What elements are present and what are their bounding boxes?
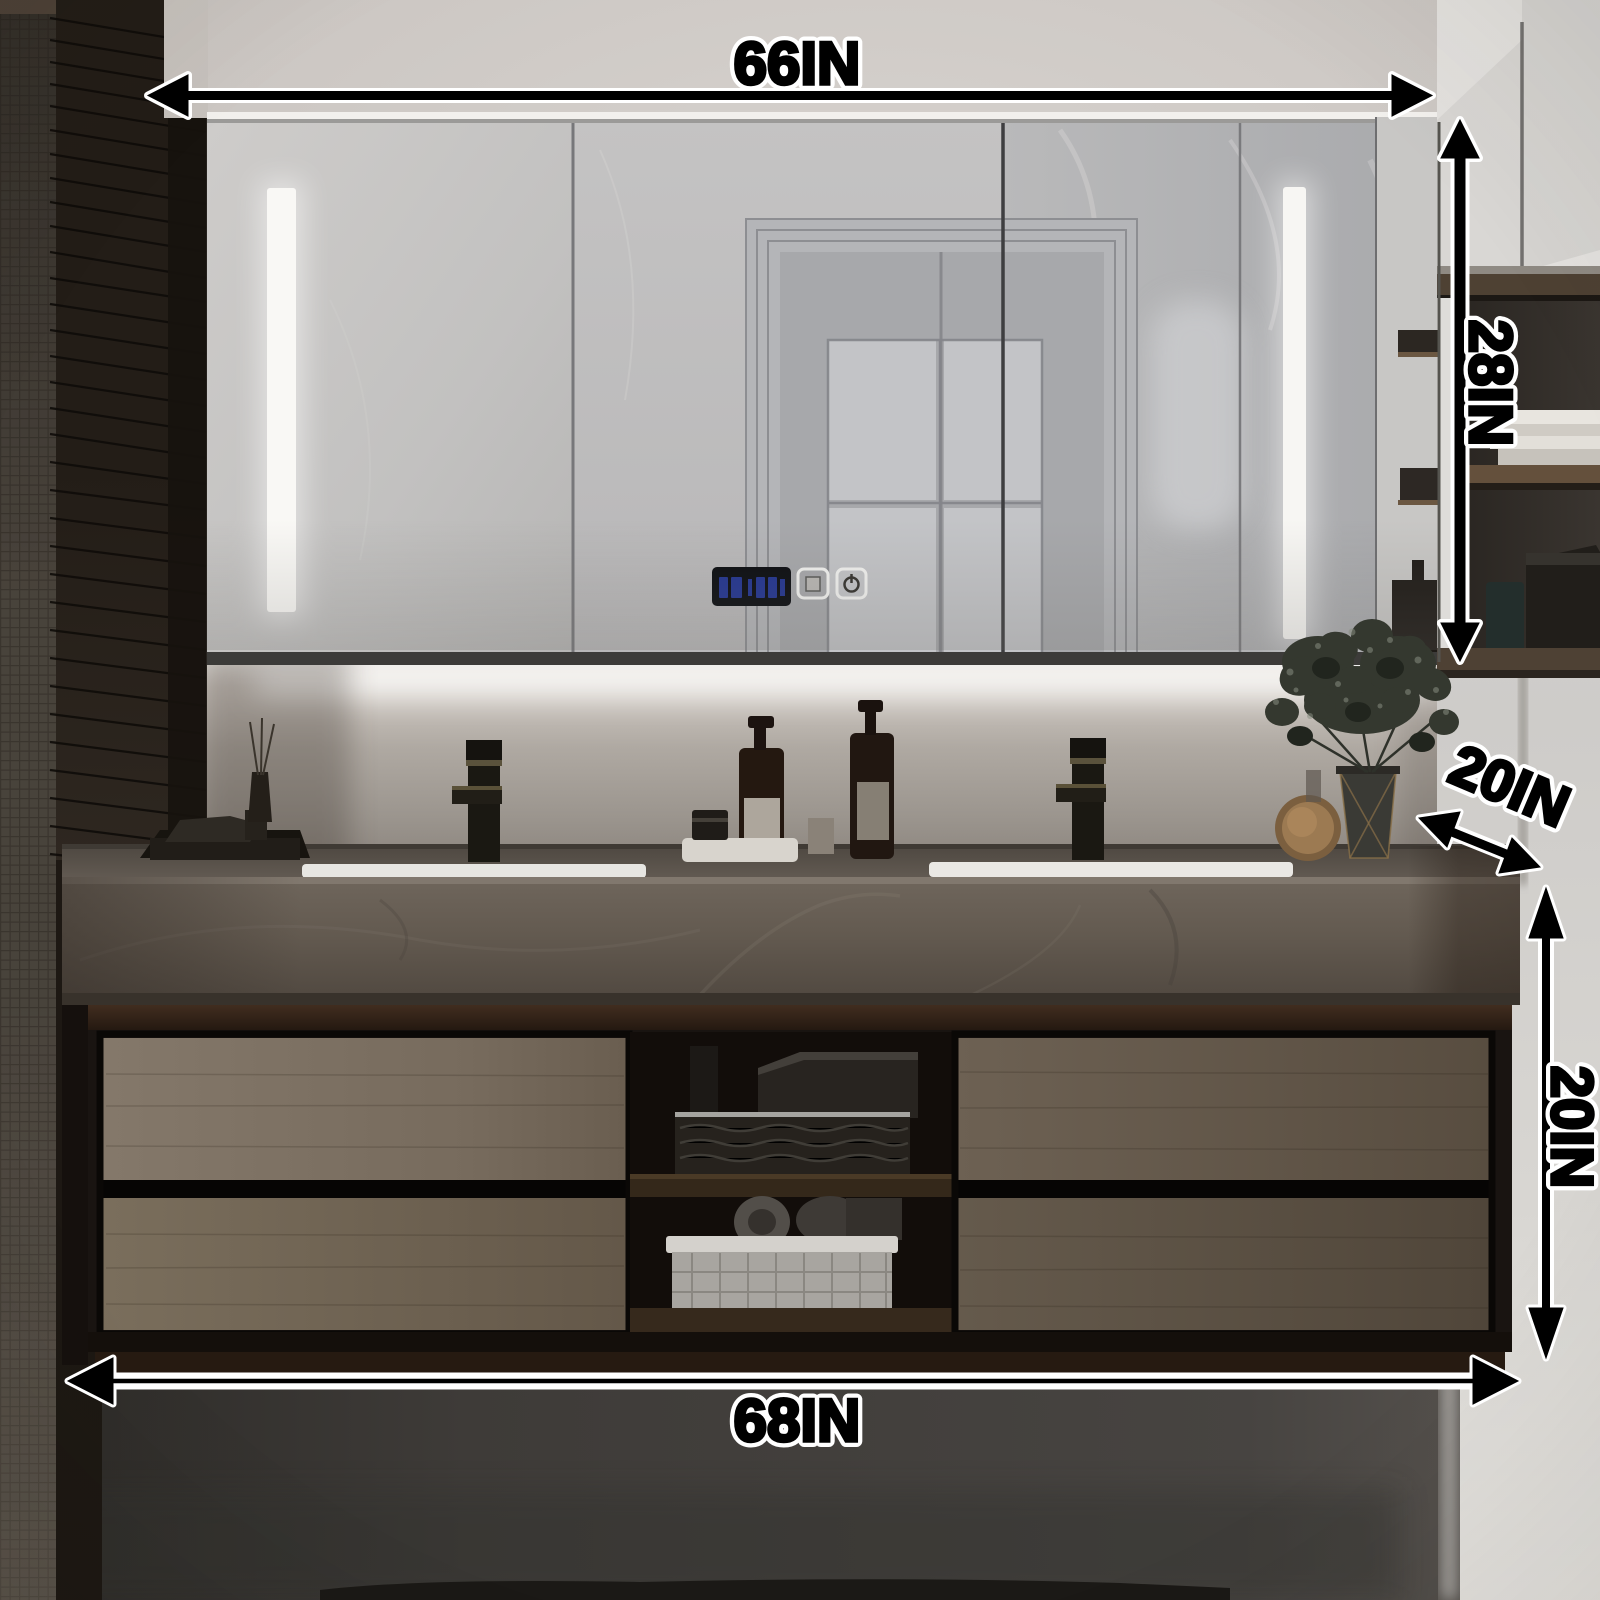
svg-text:66IN: 66IN — [734, 30, 861, 97]
svg-text:20IN: 20IN — [1539, 1066, 1600, 1189]
svg-text:68IN: 68IN — [734, 1387, 861, 1454]
svg-text:28IN: 28IN — [1457, 320, 1524, 447]
